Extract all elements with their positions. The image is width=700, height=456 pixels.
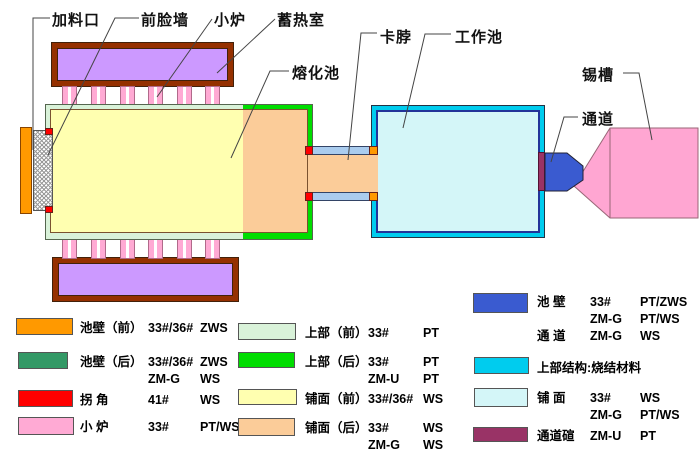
port-bar (177, 86, 192, 105)
port-bar (120, 239, 135, 259)
front-wall-hatch (33, 130, 53, 211)
legend-label: 拐 角 (80, 392, 148, 409)
legend-swatch-superstructure-front (238, 323, 296, 340)
label-working-tank: 工作池 (455, 26, 503, 47)
legend-label: 小 炉 (80, 419, 148, 436)
legend-swatch-paving-front (238, 389, 297, 405)
legend-item: 铺 面33#WS ZM-GPT/WS (537, 390, 680, 424)
legend-label: 铺 面 (537, 390, 590, 407)
port-bar (205, 86, 220, 105)
label-melting-tank: 熔化池 (292, 62, 340, 83)
legend-item: 上部（前）33#PT (305, 325, 439, 342)
legend-item: 铺面（后）33#WS ZM-GWS (305, 420, 443, 454)
legend-label: 上部（后） (305, 354, 368, 371)
port-bar (91, 239, 106, 259)
corner-block-orange (369, 146, 378, 155)
corner-block (45, 128, 53, 135)
melting-tank-paving-rear (243, 110, 307, 232)
legend-swatch-working-paving (474, 388, 528, 407)
legend-item: 小 炉33#PT/WS (80, 419, 240, 436)
legend-label: 池壁（前） (80, 320, 148, 337)
legend-item: 池壁（后）33#/36#ZWS ZM-GWS (80, 354, 228, 388)
legend-swatch-corner (18, 390, 73, 407)
port-bar (148, 86, 163, 105)
port-bar (120, 86, 135, 105)
legend-label: 通道碹 (537, 428, 590, 445)
legend-item: 上部（后）33#PT ZM-UPT (305, 354, 439, 388)
legend-item: 铺面（前）33#/36#WS (305, 391, 443, 408)
legend-swatch-paving-rear (238, 418, 295, 436)
neck-glass-channel (308, 155, 378, 192)
neck-wall-top (306, 146, 372, 155)
neck-wall-bottom (306, 192, 372, 201)
corner-block-orange (369, 192, 378, 201)
port-bar (148, 239, 163, 259)
port-bar (177, 239, 192, 259)
label-regenerator: 蓄热室 (277, 9, 325, 30)
corner-block (305, 146, 313, 155)
legend-label: 池壁（后） (80, 354, 148, 371)
top-regenerator (52, 43, 233, 86)
port-bar (62, 239, 77, 259)
label-tin-bath: 锡槽 (582, 64, 614, 85)
port-bar (62, 86, 77, 105)
furnace-diagram-page: 加料口 前脸墙 小炉 蓄热室 熔化池 卡脖 工作池 锡槽 通道 池壁（前）33#… (0, 0, 700, 456)
legend-label: 池 壁 (537, 294, 590, 311)
legend-label: 铺面（前） (305, 391, 368, 408)
tin-bath-shape (574, 128, 698, 218)
legend-item: 上部结构:烧结材料 (537, 360, 641, 377)
legend-swatch-working-pool-wall (473, 293, 528, 313)
legend-label: 上部（前） (305, 325, 368, 342)
legend-swatch-channel-arch (473, 427, 528, 442)
port-bar (91, 86, 106, 105)
label-feed-port: 加料口 (52, 9, 100, 30)
corner-block (45, 206, 53, 213)
legend-swatch-working-superstructure (474, 357, 529, 374)
legend-item: 通道碹ZM-UPT (537, 428, 656, 445)
feed-port-wall (20, 127, 32, 214)
corner-block (305, 192, 313, 201)
port-bar (205, 239, 220, 259)
leader-channel (551, 117, 578, 162)
legend-label: 上部结构: (537, 360, 591, 377)
label-neck: 卡脖 (380, 26, 412, 47)
label-port-furnace: 小炉 (214, 9, 246, 30)
legend-label: 铺面（后） (305, 420, 368, 437)
working-pool-paving (378, 112, 538, 231)
label-channel: 通道 (582, 108, 614, 129)
channel-arch-brick (538, 152, 545, 191)
channel-shape (545, 153, 583, 191)
legend-label: 通 道 (537, 328, 590, 345)
label-front-wall: 前脸墙 (141, 9, 189, 30)
legend-item: 拐 角41#WS (80, 392, 220, 409)
legend-swatch-pool-wall-rear (18, 352, 68, 369)
bottom-regenerator (53, 258, 238, 301)
legend-item: 池壁（前）33#/36#ZWS (80, 320, 228, 337)
legend-swatch-superstructure-rear (238, 352, 295, 368)
legend-item: 池 壁33#PT/ZWS ZM-GPT/WS 通 道ZM-GWS (537, 294, 687, 345)
melting-tank-superstructure-rear-bottom (243, 233, 312, 239)
legend-swatch-pool-wall-front (16, 318, 73, 335)
legend-swatch-port-furnace (18, 417, 74, 435)
leader-tin-bath (623, 73, 652, 140)
